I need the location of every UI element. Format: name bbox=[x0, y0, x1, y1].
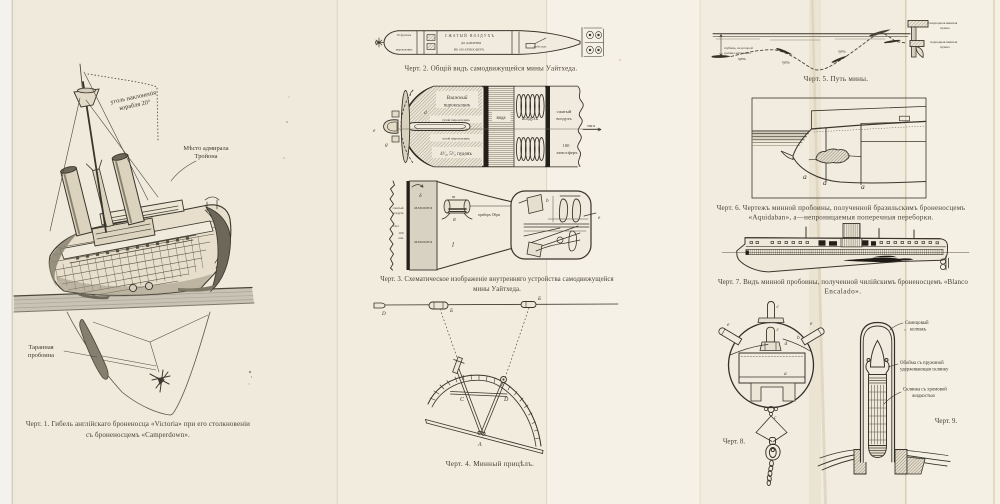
svg-text:d: d bbox=[785, 341, 788, 347]
svg-text:Черт. 1. Гибель англійскаго бр: Черт. 1. Гибель англійскаго броненосца «… bbox=[26, 420, 250, 428]
svg-text:пушка: пушка bbox=[940, 26, 950, 30]
svg-text:СЖАТЫЙ ВОЗДУХЪ: СЖАТЫЙ ВОЗДУХЪ bbox=[445, 33, 495, 38]
svg-text:l: l bbox=[452, 241, 454, 249]
svg-text:Черт. 4. Минный прицѣлъ.: Черт. 4. Минный прицѣлъ. bbox=[446, 460, 534, 468]
svg-text:Черт. 5. Путь мины.: Черт. 5. Путь мины. bbox=[804, 75, 868, 83]
svg-text:Б: Б bbox=[449, 309, 453, 314]
svg-text:Таранная: Таранная bbox=[28, 344, 53, 351]
svg-text:4¹⁄₂, 5¹⁄₂ пудовъ: 4¹⁄₂, 5¹⁄₂ пудовъ bbox=[440, 151, 472, 157]
svg-text:Черт. 6. Чертежъ минной пробои: Черт. 6. Чертежъ минной пробоины, получе… bbox=[717, 204, 966, 212]
svg-text:воздухъ: воздухъ bbox=[392, 211, 404, 215]
svg-text:тяга: тяга bbox=[393, 224, 399, 228]
svg-text:сжатый: сжатый bbox=[393, 206, 404, 210]
svg-text:машина: машина bbox=[414, 205, 432, 210]
svg-text:атм.: атм. bbox=[398, 236, 404, 240]
svg-text:D: D bbox=[503, 397, 509, 403]
svg-text:Черт. 7. Видъ минной пробоины,: Черт. 7. Видъ минной пробоины, полученно… bbox=[718, 278, 968, 286]
svg-text:приборъ Обри: приборъ Обри bbox=[478, 213, 500, 217]
svg-text:Черт. 2. Общій видъ самодвижущ: Черт. 2. Общій видъ самодвижущейся мины … bbox=[405, 65, 578, 73]
svg-text:сухой пироксилинъ: сухой пироксилинъ bbox=[442, 118, 470, 122]
svg-text:пироксилинъ: пироксилинъ bbox=[444, 104, 471, 109]
svg-text:a: a bbox=[803, 172, 807, 181]
svg-text:b: b bbox=[546, 198, 549, 204]
svg-text:A: A bbox=[477, 442, 482, 448]
svg-text:g: g bbox=[385, 142, 388, 148]
svg-text:путь: путь bbox=[738, 57, 746, 61]
svg-text:d: d bbox=[424, 110, 427, 116]
svg-text:атмосферъ: атмосферъ bbox=[556, 150, 578, 155]
svg-text:a: a bbox=[784, 371, 787, 377]
svg-text:сухой пироксилинъ: сухой пироксилинъ bbox=[442, 137, 470, 141]
svg-text:Тройона: Тройона bbox=[195, 153, 218, 160]
svg-text:жидкостью: жидкостью bbox=[911, 394, 935, 399]
svg-text:вода: вода bbox=[496, 116, 506, 121]
svg-text:a: a bbox=[861, 182, 865, 191]
svg-text:съ броненосцемъ «Camperdown».: съ броненосцемъ «Camperdown». bbox=[86, 431, 190, 439]
svg-text:воздухъ: воздухъ bbox=[556, 116, 572, 121]
svg-text:пробоина: пробоина bbox=[28, 352, 54, 359]
svg-text:D: D bbox=[381, 311, 386, 317]
svg-text:50 фунтовъ: 50 фунтовъ bbox=[397, 33, 412, 37]
svg-text:путь: путь bbox=[838, 50, 846, 54]
svg-text:Черт. 3. Схематическое изображ: Черт. 3. Схематическое изображеніе внутр… bbox=[380, 276, 613, 283]
svg-text:Склянка съ хромовой: Склянка съ хромовой bbox=[903, 388, 947, 393]
svg-text:Encalado».: Encalado». bbox=[824, 288, 861, 296]
svg-text:Влажный: Влажный bbox=[447, 95, 468, 101]
svg-text:Б: Б bbox=[537, 297, 541, 302]
svg-text:машина: машина bbox=[414, 239, 432, 244]
svg-text:R: R bbox=[452, 217, 456, 222]
svg-text:удерживающая склянку: удерживающая склянку bbox=[900, 368, 949, 373]
svg-text:Обойма съ пружиной: Обойма съ пружиной bbox=[900, 361, 944, 366]
svg-text:пироксилина: пироксилина bbox=[396, 48, 413, 52]
svg-text:воздухъ: воздухъ bbox=[522, 117, 538, 122]
svg-text:b: b bbox=[797, 335, 800, 341]
svg-text:тяга: тяга bbox=[587, 123, 595, 128]
svg-text:«Aquidaban», а—непроницаемыя п: «Aquidaban», а—непроницаемыя поперечныя … bbox=[749, 214, 934, 222]
svg-text:гребн. валъ: гребн. валъ bbox=[534, 46, 547, 49]
svg-text:колпакъ: колпакъ bbox=[910, 328, 927, 333]
svg-text:100: 100 bbox=[398, 231, 403, 235]
svg-text:Черт. 9.: Черт. 9. bbox=[935, 417, 958, 425]
svg-text:сжатый: сжатый bbox=[557, 109, 572, 114]
svg-text:δ: δ bbox=[419, 193, 422, 199]
svg-text:Мѣсто адмирала: Мѣсто адмирала bbox=[183, 145, 228, 152]
svg-text:a: a bbox=[823, 178, 827, 187]
svg-text:подводная минная: подводная минная bbox=[930, 40, 958, 44]
svg-text:путь: путь bbox=[782, 61, 790, 65]
svg-text:мины Уайтхеда.: мины Уайтхеда. bbox=[473, 286, 521, 293]
svg-text:100: 100 bbox=[563, 143, 571, 148]
svg-text:пушка: пушка bbox=[940, 45, 950, 49]
svg-text:Черт. 8.: Черт. 8. bbox=[723, 438, 746, 446]
svg-text:ВЪ 100 АТМОСФЕРЪ: ВЪ 100 АТМОСФЕРЪ bbox=[454, 48, 485, 52]
svg-text:надводная минная: надводная минная bbox=[930, 21, 958, 25]
svg-text:Свинцовый: Свинцовый bbox=[905, 321, 929, 326]
svg-text:ДО ДАВЛЕНІЯ: ДО ДАВЛЕНІЯ bbox=[461, 41, 481, 45]
